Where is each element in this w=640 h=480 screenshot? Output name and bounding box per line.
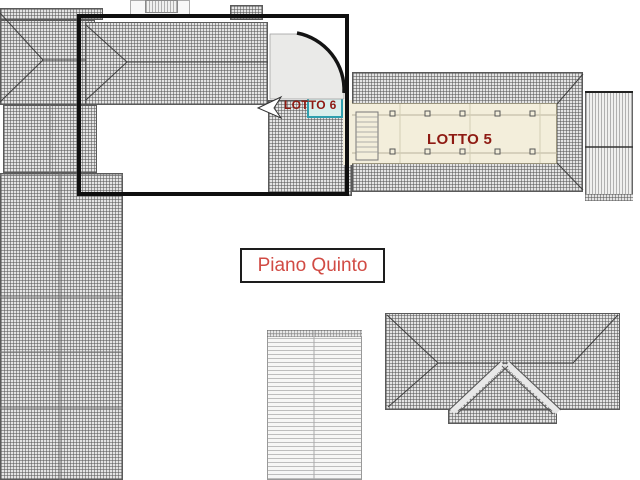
floor-label: Piano Quinto — [258, 255, 368, 277]
bottom-terrace — [267, 330, 362, 480]
selection-rectangle — [77, 14, 349, 196]
left-wing-lower — [0, 173, 123, 480]
floor-plan-canvas: LOTTO 6 LOTTO 5 Piano Quinto — [0, 0, 640, 480]
floor-label-box: Piano Quinto — [240, 248, 385, 283]
right-roof-strip — [585, 91, 633, 195]
bottom-right-roof-protrusion — [448, 409, 557, 424]
bottom-right-roof — [385, 313, 620, 410]
stairwell-top-treads — [145, 0, 178, 13]
right-roof-strip-cap — [585, 194, 633, 201]
lotto-5-label: LOTTO 5 — [427, 131, 492, 148]
bottom-terrace-top-band — [267, 330, 362, 337]
